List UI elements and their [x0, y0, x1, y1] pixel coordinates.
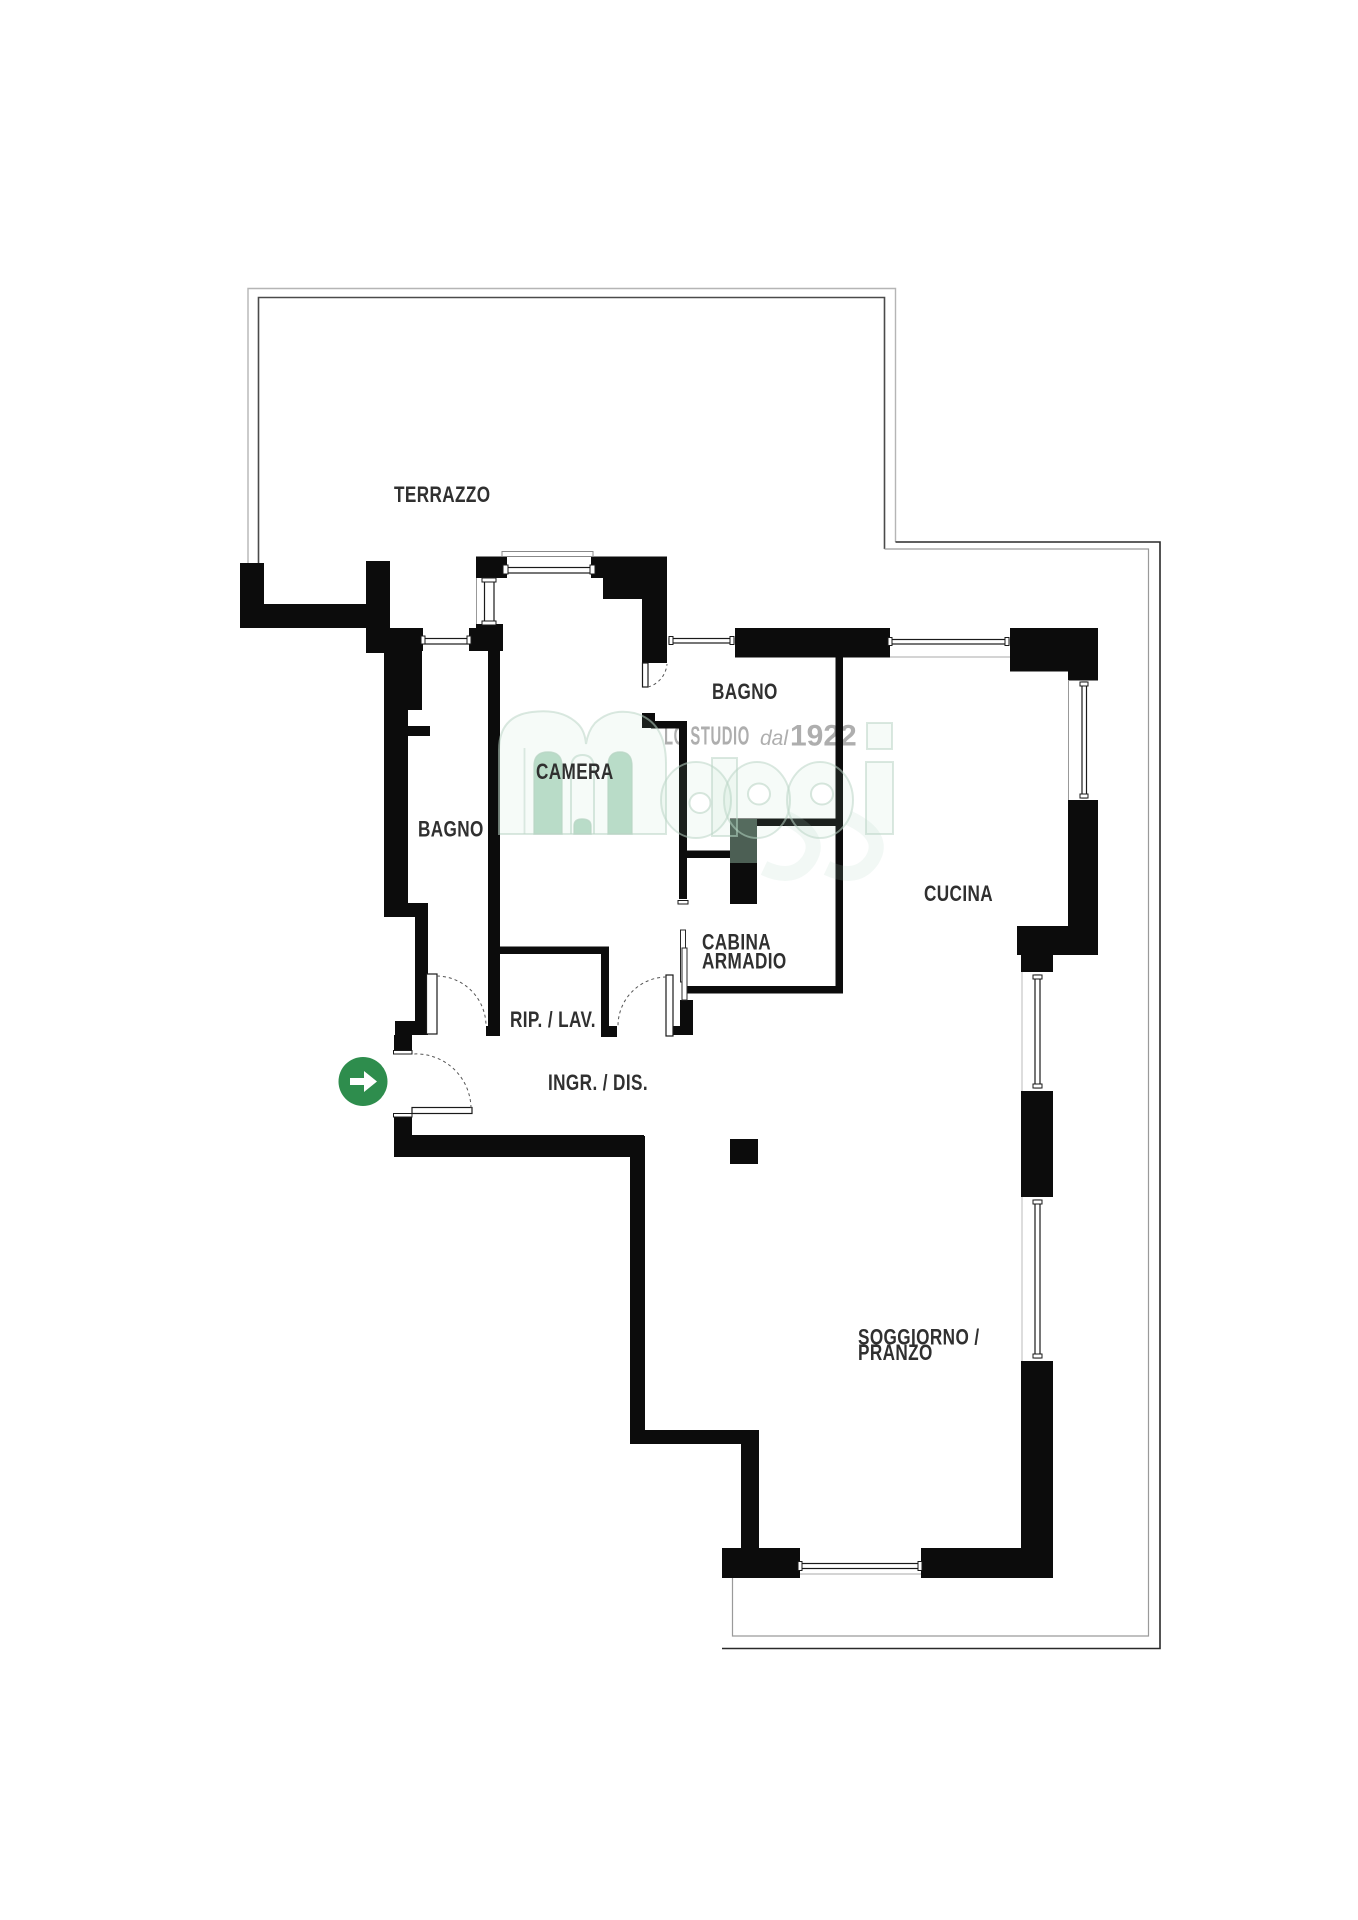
svg-text:1922: 1922	[790, 720, 857, 753]
svg-text:BAGNO: BAGNO	[418, 818, 484, 843]
svg-text:TERRAZZO: TERRAZZO	[394, 483, 490, 508]
svg-text:BAGNO: BAGNO	[712, 680, 778, 705]
svg-text:dal: dal	[760, 727, 789, 750]
svg-text:CAMERA: CAMERA	[536, 760, 614, 785]
svg-text:PRANZO: PRANZO	[858, 1341, 933, 1366]
svg-text:ARMADIO: ARMADIO	[702, 950, 787, 975]
svg-text:INGR. / DIS.: INGR. / DIS.	[548, 1071, 648, 1096]
svg-text:RIP. / LAV.: RIP. / LAV.	[510, 1008, 596, 1033]
svg-text:CUCINA: CUCINA	[924, 882, 993, 907]
